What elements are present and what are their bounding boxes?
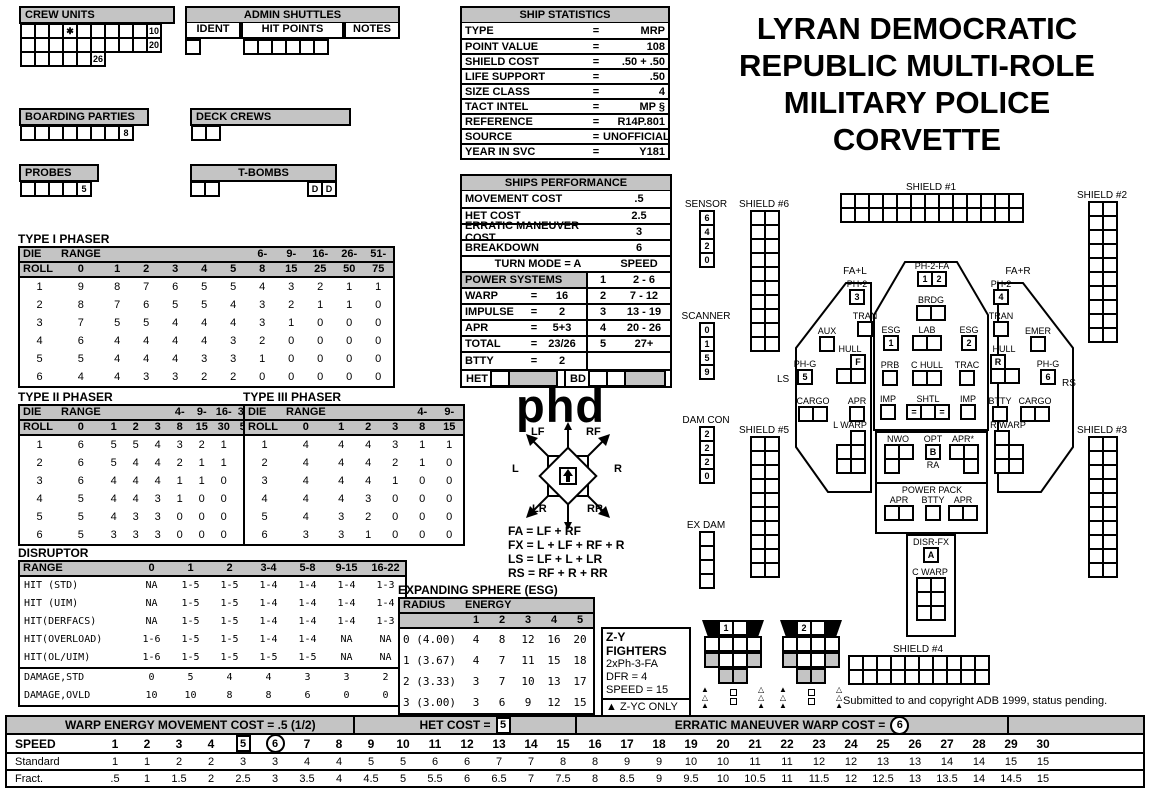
track-box[interactable] — [824, 652, 840, 668]
track-box[interactable] — [898, 444, 914, 460]
track-box[interactable] — [204, 181, 220, 197]
value-cell: 3 — [132, 368, 161, 387]
speed-cell: 9 — [643, 773, 675, 785]
triangle-icon: ▲ — [701, 702, 709, 710]
bd-box[interactable] — [606, 370, 626, 387]
system-cargo-right: CARGO — [1014, 396, 1056, 422]
track-box[interactable]: 0 — [699, 252, 715, 268]
value-cell: 4 — [355, 435, 382, 454]
track-box[interactable] — [1102, 327, 1118, 343]
arc-formulas: FA = LF + RF FX = L + LF + RF + R LS = L… — [508, 524, 624, 580]
value-cell: 1 — [382, 472, 409, 490]
track-box[interactable]: 5 — [797, 369, 813, 385]
track-box[interactable] — [926, 335, 942, 351]
track-box[interactable]: = — [934, 404, 950, 420]
speed-cell: 6 — [419, 756, 451, 768]
value-cell: 4 — [161, 332, 190, 350]
header-cell: 3 — [515, 613, 541, 628]
triangle-icon: ▲ — [835, 702, 843, 710]
track-box[interactable] — [1004, 368, 1020, 384]
header-cell: 9-15 — [327, 561, 366, 576]
value-cell: 3 — [328, 526, 355, 545]
speed-cell: 4 — [291, 756, 323, 768]
system-label: HULL — [992, 344, 1015, 354]
system-label: CARGO — [1018, 396, 1051, 406]
turn-mode-row: TURN MODE = A SPEED — [462, 255, 670, 271]
value-cell: 2 — [306, 277, 335, 296]
system-label: NWO — [887, 434, 909, 444]
system-label: C WARP — [912, 567, 948, 577]
header-cell: ROLL — [244, 420, 284, 435]
track-box[interactable] — [926, 370, 942, 386]
speed-chart-row: SPEED12345678910111213141516171819202122… — [7, 735, 1143, 752]
header-cell: RANGE — [59, 405, 103, 420]
track-box[interactable] — [746, 652, 762, 668]
header-cell: 4 — [190, 262, 219, 277]
square-icon — [808, 689, 815, 696]
crew-units-header: CREW UNITS — [19, 6, 175, 24]
system-label: APR — [954, 495, 973, 505]
system-hull-left: HULL F — [832, 344, 868, 382]
value-cell: 4 — [125, 472, 147, 490]
value-cell: 17 — [567, 671, 594, 692]
track-box[interactable] — [1008, 458, 1024, 474]
speed-cell: 9.5 — [675, 773, 707, 785]
value-cell: 5 — [190, 277, 219, 296]
system-phg-right: PH-G 6 — [1032, 359, 1064, 385]
title-line: CORVETTE — [688, 121, 1146, 158]
system-boxes: F — [836, 354, 864, 382]
value-cell: 8 — [249, 687, 288, 706]
system-label: BRDG — [918, 295, 944, 305]
track-box[interactable]: 20 — [146, 37, 162, 53]
phaser1-title: TYPE I PHASER — [18, 232, 109, 246]
sheet-title: LYRAN DEMOCRATIC REPUBLIC MULTI-ROLE MIL… — [688, 10, 1146, 158]
track-box[interactable]: 2 — [961, 335, 977, 351]
track-box[interactable] — [764, 336, 780, 352]
value-cell: 3 — [219, 332, 248, 350]
system-boxes — [857, 321, 873, 337]
power-row: TOTAL=23/26 — [462, 337, 586, 353]
track-box[interactable] — [857, 321, 873, 337]
track-box[interactable]: 5 — [76, 181, 92, 197]
admin-hit-cells — [237, 39, 348, 57]
track-box[interactable]: 4 — [993, 289, 1009, 305]
value-cell: 1 — [244, 435, 284, 454]
header-cell: 15 — [436, 420, 464, 435]
header-cell: 4- — [169, 405, 191, 420]
track-box[interactable]: 6 — [1040, 369, 1056, 385]
track-box[interactable] — [850, 458, 866, 474]
sensor-label: SENSOR — [685, 200, 727, 210]
phaser-table: DIERANGE6-9-16-26-51-ROLL012345815255075… — [18, 246, 395, 388]
track-box[interactable]: 9 — [699, 364, 715, 380]
stat-row: YEAR IN SVC=Y181 — [462, 143, 668, 158]
track-box[interactable] — [930, 605, 946, 621]
stat-row: TYPE=MRP — [462, 23, 668, 38]
value-cell: 2 — [219, 368, 248, 387]
track-box[interactable] — [959, 370, 975, 386]
track-box[interactable]: D — [321, 181, 337, 197]
scanner-label: SCANNER — [682, 312, 731, 322]
stat-row: REFERENCE=R14P.801 — [462, 113, 668, 128]
value-cell: 1-6 — [132, 631, 171, 649]
header-cell: 0 — [59, 420, 103, 435]
value-cell: 3 — [161, 368, 190, 387]
speed-cell: 11 — [419, 737, 451, 751]
track-box[interactable] — [884, 458, 900, 474]
speed-cell: 8.5 — [611, 773, 643, 785]
sensor-boxes: 6420 — [699, 210, 713, 266]
fighter-marks-squares — [808, 686, 815, 710]
header-cell: ENERGY — [463, 598, 594, 613]
speed-cell: 10 — [387, 737, 419, 751]
value-cell: 1-4 — [249, 613, 288, 631]
value-cell: 0 — [382, 490, 409, 508]
value-cell: 4 — [59, 368, 103, 387]
value-cell: 4 — [190, 332, 219, 350]
t-bombs-header: T-BOMBS — [190, 164, 337, 182]
system-label: ESG — [881, 325, 900, 335]
value-cell: 1-4 — [288, 595, 327, 613]
header-cell — [103, 247, 132, 262]
track-box[interactable] — [925, 505, 941, 521]
value-cell: 4 — [161, 350, 190, 368]
value-cell: 0 — [436, 490, 464, 508]
system-boxes: 4 — [993, 289, 1009, 305]
track-box[interactable] — [313, 39, 329, 55]
value-cell: 0 — [409, 526, 436, 545]
system-label: C HULL — [911, 360, 943, 370]
system-label: BTTY — [988, 396, 1011, 406]
speed-col-label: SPEED — [611, 258, 667, 270]
track-box[interactable] — [880, 404, 896, 420]
value-cell: 4 — [147, 435, 169, 454]
fighter-wing-icon — [780, 620, 796, 636]
speed-cell: 26 — [899, 737, 931, 751]
value-cell: 4 — [103, 490, 125, 508]
track-box[interactable] — [960, 404, 976, 420]
value-cell: 6 — [288, 687, 327, 706]
value-cell: 4 — [355, 472, 382, 490]
performance-row: MOVEMENT COST.5 — [462, 191, 670, 207]
zy-fighters-dfr: DFR = 4 — [606, 671, 686, 684]
track-box[interactable] — [185, 39, 201, 55]
track-box[interactable] — [974, 669, 990, 685]
admin-col-notes: NOTES — [346, 23, 398, 37]
speed-cell: 1 — [131, 773, 163, 785]
track-box[interactable] — [930, 305, 946, 321]
value-cell: 4 — [190, 314, 219, 332]
value-cell: 6 — [19, 368, 59, 387]
value-cell: DAMAGE,OVLD — [19, 687, 132, 706]
track-box[interactable]: 0 — [699, 468, 715, 484]
value-cell: 3 — [328, 508, 355, 526]
value-cell: 3 — [463, 692, 489, 714]
value-cell: 1 — [169, 472, 191, 490]
header-cell: 0 — [284, 420, 328, 435]
header-cell: 15 — [277, 262, 306, 277]
track-box[interactable] — [732, 668, 748, 684]
header-cell: 9- — [191, 405, 213, 420]
speed-chart-row: Fract..511.522.533.544.555.566.577.588.5… — [7, 769, 1143, 786]
track-box[interactable] — [1034, 406, 1050, 422]
track-box[interactable] — [1102, 562, 1118, 578]
track-box[interactable]: 8 — [118, 125, 134, 141]
track-box[interactable] — [699, 573, 715, 589]
speed-cell: 10 — [707, 773, 739, 785]
value-cell: 4 — [328, 490, 355, 508]
track-box[interactable] — [810, 668, 826, 684]
speed-cell: 19 — [675, 737, 707, 751]
track-box[interactable] — [882, 370, 898, 386]
value-cell: 3 — [190, 350, 219, 368]
value-cell: 2 — [169, 454, 191, 472]
system-label: PH-2-FA — [915, 261, 950, 271]
het-box[interactable] — [490, 370, 510, 387]
title-line: LYRAN DEMOCRATIC — [688, 10, 1146, 47]
value-cell: 1-4 — [249, 631, 288, 649]
square-icon — [808, 698, 815, 705]
speed-cell: 3 — [259, 756, 291, 768]
zy-fighters-speed: SPEED = 15 — [606, 684, 686, 697]
speed-cell: 8 — [579, 756, 611, 768]
value-cell: 2 — [244, 454, 284, 472]
system-esg-1: ESG 1 — [876, 325, 906, 351]
fighter-marks-right: △△▲ — [835, 686, 843, 710]
value-cell: 18 — [567, 650, 594, 671]
zy-fighters-panel: Z-Y FIGHTERS 2xPh-3-FA DFR = 4 SPEED = 1… — [601, 627, 691, 717]
value-cell: 5 — [244, 508, 284, 526]
value-cell: 0 — [436, 454, 464, 472]
value-cell: 4 — [244, 490, 284, 508]
system-boxes — [925, 505, 941, 521]
value-cell: 4 — [328, 454, 355, 472]
value-cell: 4 — [125, 490, 147, 508]
system-boxes — [1030, 336, 1046, 352]
system-boxes: 6 — [1040, 369, 1056, 385]
ssd-sheet: { "title_lines": ["LYRAN DEMOCRATIC", "R… — [0, 0, 1150, 800]
track-box[interactable]: 26 — [90, 51, 106, 67]
track-box[interactable] — [898, 505, 914, 521]
value-cell: 0 — [277, 368, 306, 387]
admin-notes-cell — [348, 39, 400, 57]
value-cell: 2 — [277, 296, 306, 314]
header-cell — [219, 247, 248, 262]
value-cell: 3 — [125, 508, 147, 526]
track-box[interactable]: 2 — [931, 271, 947, 287]
header-cell — [103, 405, 125, 420]
triangle-icon: ▲ — [757, 702, 765, 710]
value-cell: 0 — [436, 508, 464, 526]
crew-units-row-3: 26 — [20, 51, 106, 67]
value-cell: 5 — [161, 296, 190, 314]
system-boxes — [836, 430, 864, 472]
speed-cell: 6.5 — [483, 773, 515, 785]
value-cell: 11 — [515, 650, 541, 671]
system-boxes — [882, 370, 898, 386]
turn-chart-column: 12 - 627 - 12313 - 19420 - 26527+ — [588, 273, 670, 369]
shield-1-label: SHIELD #1 — [906, 183, 956, 193]
value-cell: 4 — [103, 332, 132, 350]
header-cell: 1 — [463, 613, 489, 628]
header-cell — [190, 247, 219, 262]
speed-cell: 13.5 — [931, 773, 963, 785]
firing-arc-rose: LF RF L R LR RR — [510, 418, 626, 534]
value-cell: 1 — [19, 277, 59, 296]
value-cell: 3 — [288, 668, 327, 687]
system-boxes — [916, 305, 946, 321]
speed-chart-row: Standard11223344556677889910101111121213… — [7, 752, 1143, 769]
track-box[interactable] — [1008, 207, 1024, 223]
track-box[interactable] — [1030, 336, 1046, 352]
track-box[interactable]: B — [925, 444, 941, 460]
row-label: Fract. — [7, 773, 99, 785]
system-boxes: B — [925, 444, 941, 460]
value-cell: 4 — [284, 454, 328, 472]
value-cell: 1-5 — [210, 631, 249, 649]
system-label: R WARP — [990, 420, 1026, 430]
power-row: BTTY=2 — [462, 353, 586, 369]
ships-performance-header: SHIPS PERFORMANCE — [460, 174, 672, 192]
system-boxes: 5 — [797, 369, 813, 385]
track-box[interactable]: A — [923, 547, 939, 563]
dam-con-track: DAM CON 2220 — [678, 416, 734, 482]
value-cell: 16 — [541, 628, 567, 650]
value-cell: 4 — [328, 435, 355, 454]
value-cell: 0 — [213, 508, 235, 526]
system-boxes: == — [906, 404, 950, 420]
system-boxes — [916, 577, 944, 619]
value-cell: 8 — [103, 277, 132, 296]
speed-cell: 12 — [835, 756, 867, 768]
value-cell: 4 — [147, 454, 169, 472]
header-cell: 15 — [191, 420, 213, 435]
zy-fighters-weapons: 2xPh-3-FA — [606, 658, 686, 671]
header-cell: 9- — [436, 405, 464, 420]
power-row: WARP=16 — [462, 289, 586, 305]
ls-label: LS — [777, 374, 789, 385]
speed-cell: 14 — [963, 773, 995, 785]
speed-cell: 29 — [995, 737, 1027, 751]
track-box[interactable] — [746, 636, 762, 652]
system-boxes: 12 — [917, 271, 947, 287]
value-cell: 2 — [248, 332, 277, 350]
value-cell: 3 — [103, 526, 125, 545]
system-trac: TRAC — [950, 360, 984, 386]
track-box[interactable]: 3 — [849, 289, 865, 305]
system-label: CARGO — [796, 396, 829, 406]
shield-5-boxes — [750, 436, 778, 576]
value-cell: 5 — [19, 350, 59, 368]
header-cell: 5 — [567, 613, 594, 628]
value-cell: 5 — [103, 314, 132, 332]
speed-cell: 3 — [227, 756, 259, 768]
speed-cell: 5.5 — [419, 773, 451, 785]
value-cell: 0 — [364, 368, 394, 387]
header-cell: 3 — [382, 420, 409, 435]
arc-fal-label: FA+L — [830, 266, 880, 277]
value-cell: 5 — [125, 435, 147, 454]
formula-rs: RS = RF + R + RR — [508, 566, 624, 580]
value-cell: 4 — [147, 472, 169, 490]
arc-label-rf: RF — [586, 426, 601, 438]
value-cell: 1-5 — [249, 649, 288, 668]
header-cell: RADIUS — [399, 598, 463, 613]
value-cell: 2 — [19, 296, 59, 314]
header-cell: 1 — [103, 262, 132, 277]
performance-row: BREAKDOWN6 — [462, 239, 670, 255]
speed-cell: 3.5 — [291, 773, 323, 785]
track-box[interactable]: 1 — [883, 335, 899, 351]
header-cell — [399, 613, 463, 628]
value-cell: 1 (3.67) — [399, 650, 463, 671]
power-rows: WARP=16IMPULSE=2APR=5+3TOTAL=23/26BTTY=2 — [462, 289, 586, 369]
speed-cell: 30 — [1027, 737, 1059, 751]
value-cell: 4 — [463, 650, 489, 671]
value-cell: 1-4 — [288, 613, 327, 631]
value-cell: 4 — [125, 454, 147, 472]
track-box[interactable] — [824, 636, 840, 652]
header-cell: 3 — [147, 420, 169, 435]
header-cell — [132, 247, 161, 262]
value-cell: 3 (3.00) — [399, 692, 463, 714]
value-cell: 5 — [59, 350, 103, 368]
value-cell: 10 — [171, 687, 210, 706]
speed-cell: 18 — [643, 737, 675, 751]
arc-label-r: R — [614, 463, 622, 475]
fighter-marks-left: ▲△▲ — [779, 686, 787, 710]
system-label: TRAN — [989, 311, 1014, 321]
value-cell: 5 — [19, 508, 59, 526]
system-label: APR — [848, 396, 867, 406]
track-box[interactable] — [850, 368, 866, 384]
track-box[interactable] — [963, 458, 979, 474]
value-cell: 2 — [191, 435, 213, 454]
value-cell: 2 — [190, 368, 219, 387]
value-cell: 4 — [132, 332, 161, 350]
shield-1: SHIELD #1 — [838, 183, 1024, 221]
admin-col-hitpoints: HIT POINTS — [243, 23, 342, 37]
fighter-wing-icon — [748, 620, 764, 636]
speed-cell: 16 — [579, 737, 611, 751]
speed-cell: 7 — [483, 756, 515, 768]
copyright-note: Submitted to and copyright ADB 1999, sta… — [843, 695, 1107, 707]
system-ph2-right: PH-2 4 — [986, 279, 1016, 305]
value-cell: 15 — [567, 692, 594, 714]
track-box[interactable] — [810, 620, 826, 636]
speed-cell: 4 — [195, 737, 227, 751]
track-box[interactable] — [732, 620, 748, 636]
system-label: PH-2 — [847, 279, 868, 289]
track-box[interactable] — [993, 321, 1009, 337]
power-systems-column: POWER SYSTEMS WARP=16IMPULSE=2APR=5+3TOT… — [462, 273, 588, 369]
track-box[interactable] — [962, 505, 978, 521]
track-box[interactable] — [205, 125, 221, 141]
value-cell: 3 — [463, 671, 489, 692]
value-cell: 4 — [161, 314, 190, 332]
value-cell: 0 — [436, 526, 464, 545]
value-cell: 1 — [306, 296, 335, 314]
value-cell: 0 — [191, 490, 213, 508]
header-cell: 4- — [409, 405, 436, 420]
power-pack-label: POWER PACK — [878, 485, 986, 495]
track-box[interactable] — [764, 562, 780, 578]
value-cell: 1-5 — [210, 613, 249, 631]
speed-cell: 14.5 — [995, 773, 1027, 785]
shield-6-boxes — [750, 210, 778, 350]
speed-cell: 11 — [739, 756, 771, 768]
